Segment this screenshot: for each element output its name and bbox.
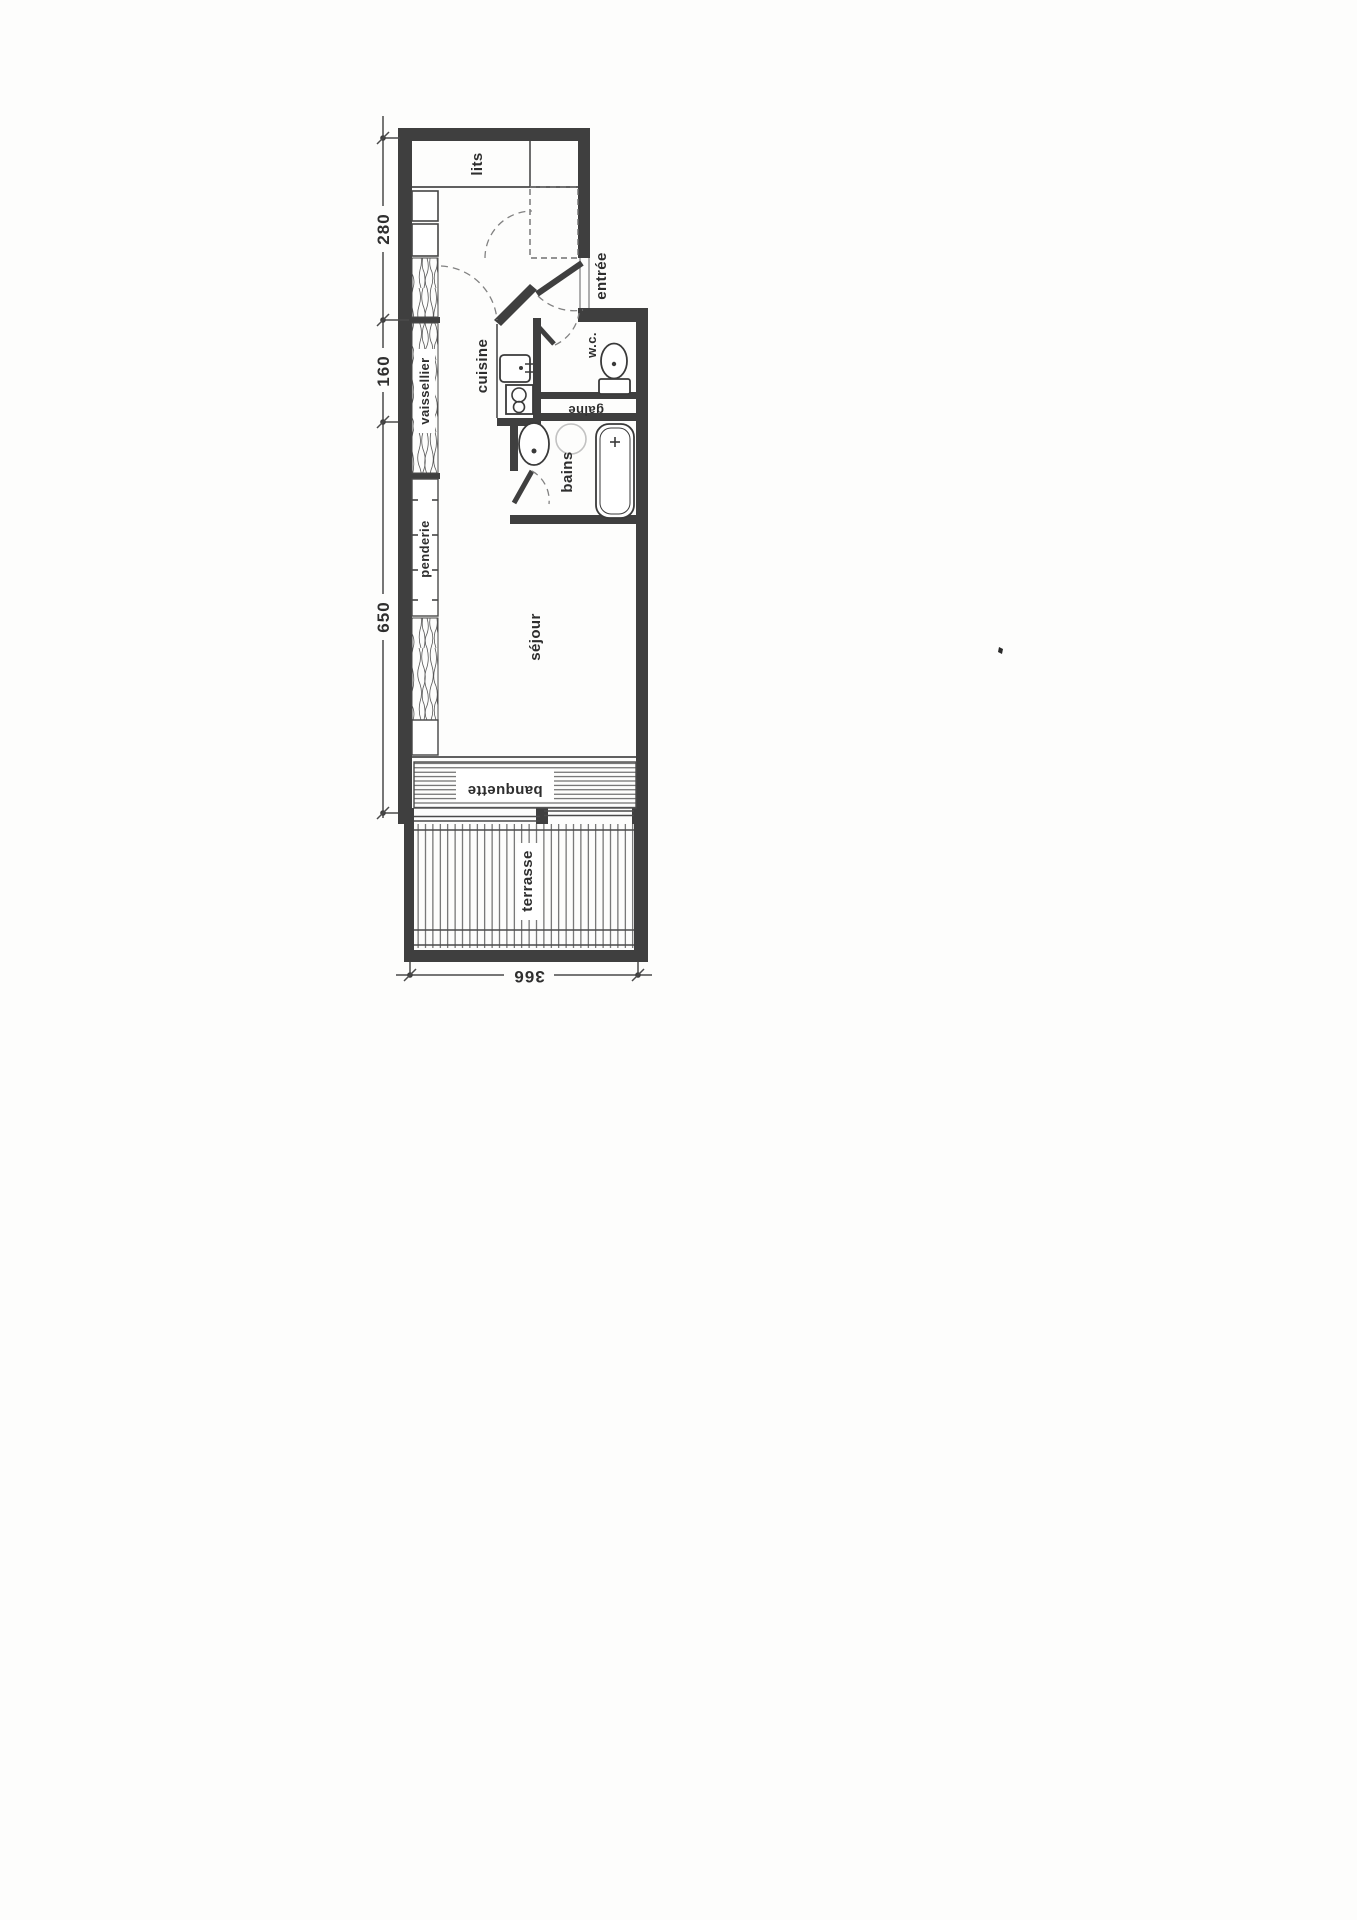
toilet-tank-icon — [599, 379, 630, 394]
dim-650: 650 — [374, 601, 393, 632]
terrace-wall-left — [404, 824, 414, 954]
hall-door-arc — [441, 266, 497, 320]
bath-door-leaf — [514, 471, 532, 503]
wall-bains-left — [510, 424, 518, 471]
wall-kitchen-right — [533, 318, 541, 420]
closet-door-arc — [485, 211, 532, 258]
kitchen-sink-icon — [500, 355, 530, 382]
gaine-duct: gaine — [568, 403, 604, 418]
dresser-hatch-1 — [412, 258, 438, 317]
faint-fixture-outline — [556, 424, 586, 454]
room-wc: w.c. — [535, 313, 630, 394]
dim-366: 366 — [513, 967, 544, 986]
room-sejour: séjour — [412, 613, 636, 757]
vaissellier-label: vaissellier — [417, 357, 432, 424]
lits-label: lits — [469, 152, 486, 175]
toilet-bowl-icon — [601, 344, 627, 379]
banquette-bench: banquette — [414, 762, 636, 808]
entrance-door-arc — [538, 296, 583, 311]
scanned-page: vaissellier penderie lits entrée — [0, 0, 1357, 1920]
floor-plan-canvas: vaissellier penderie lits entrée — [0, 0, 1357, 1920]
dim-280: 280 — [374, 213, 393, 244]
bains-label: bains — [559, 451, 576, 492]
banquette-label: banquette — [467, 782, 542, 799]
gaine-label: gaine — [568, 403, 604, 418]
dresser-hatch-3 — [412, 618, 438, 720]
sliding-glass-door — [414, 811, 634, 821]
wall-top — [398, 128, 590, 141]
room-cuisine: cuisine — [474, 324, 533, 418]
window-wall-left-pier — [398, 808, 414, 824]
sejour-label: séjour — [527, 613, 544, 660]
terrace-wall-right — [634, 824, 648, 954]
overhead-closet-dashed — [530, 187, 578, 258]
wall-right-outer — [636, 308, 648, 824]
bath-door-arc — [532, 471, 549, 504]
closet-block-2 — [412, 224, 438, 256]
apartment-plan: vaissellier penderie lits entrée — [374, 116, 1003, 986]
washbasin-icon — [519, 423, 549, 465]
left-storage-strip: vaissellier penderie — [412, 191, 438, 755]
toilet-drain-dot — [612, 362, 616, 366]
closet-block-1 — [412, 191, 438, 221]
entrance-door-leaf — [537, 263, 582, 294]
window-wall-right-pier — [632, 808, 648, 824]
wall-kitchen-diagonal — [494, 284, 537, 326]
terrasse-deck: terrasse — [414, 824, 634, 948]
cuisine-label: cuisine — [474, 339, 491, 394]
wc-door-arc — [555, 313, 579, 345]
stove-icon — [506, 385, 533, 414]
strip-break-bar-1 — [409, 317, 440, 323]
closet-block-3 — [412, 720, 438, 755]
entree-label: entrée — [593, 252, 610, 299]
scan-speck — [998, 647, 1003, 654]
wc-label: w.c. — [584, 332, 599, 359]
penderie-label: penderie — [417, 520, 432, 577]
room-bains: bains — [514, 423, 634, 518]
washbasin-drain-dot — [532, 449, 537, 454]
wall-right-upper — [578, 128, 590, 258]
sink-drain-dot — [519, 366, 523, 370]
dim-160: 160 — [374, 355, 393, 386]
terrace-wall-bottom — [404, 950, 648, 962]
strip-break-bar-2 — [409, 473, 440, 479]
terrasse-label: terrasse — [519, 850, 536, 912]
